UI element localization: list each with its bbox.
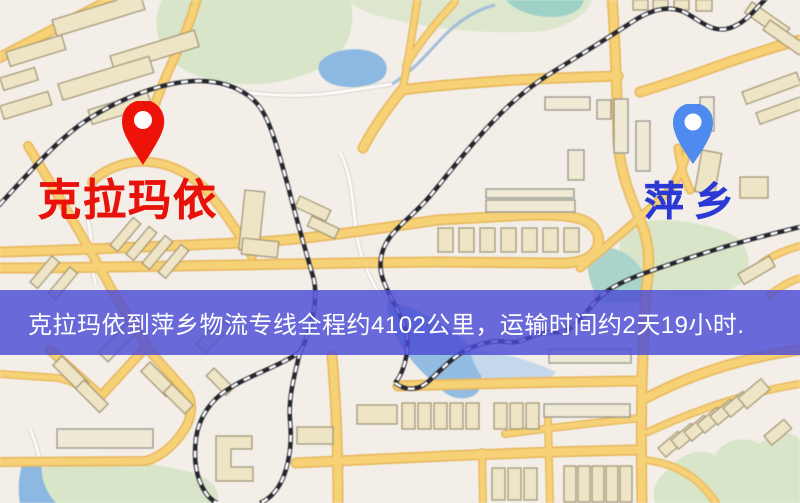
origin-pin-shape (122, 101, 164, 165)
destination-pin-shape (673, 104, 713, 164)
origin-pin-icon[interactable] (121, 101, 167, 172)
logistics-map-screenshot: 克拉玛依 萍乡 克拉玛依到萍乡物流专线全程约4102公里，运输时间约2天19小时… (0, 0, 800, 503)
map-canvas[interactable] (0, 0, 800, 503)
route-info-text: 克拉玛依到萍乡物流专线全程约4102公里，运输时间约2天19小时. (0, 305, 745, 340)
destination-city-label: 萍乡 (644, 182, 744, 222)
route-info-banner: 克拉玛依到萍乡物流专线全程约4102公里，运输时间约2天19小时. (0, 290, 800, 355)
origin-city-label: 克拉玛依 (38, 180, 218, 223)
destination-pin-icon[interactable] (672, 104, 715, 171)
